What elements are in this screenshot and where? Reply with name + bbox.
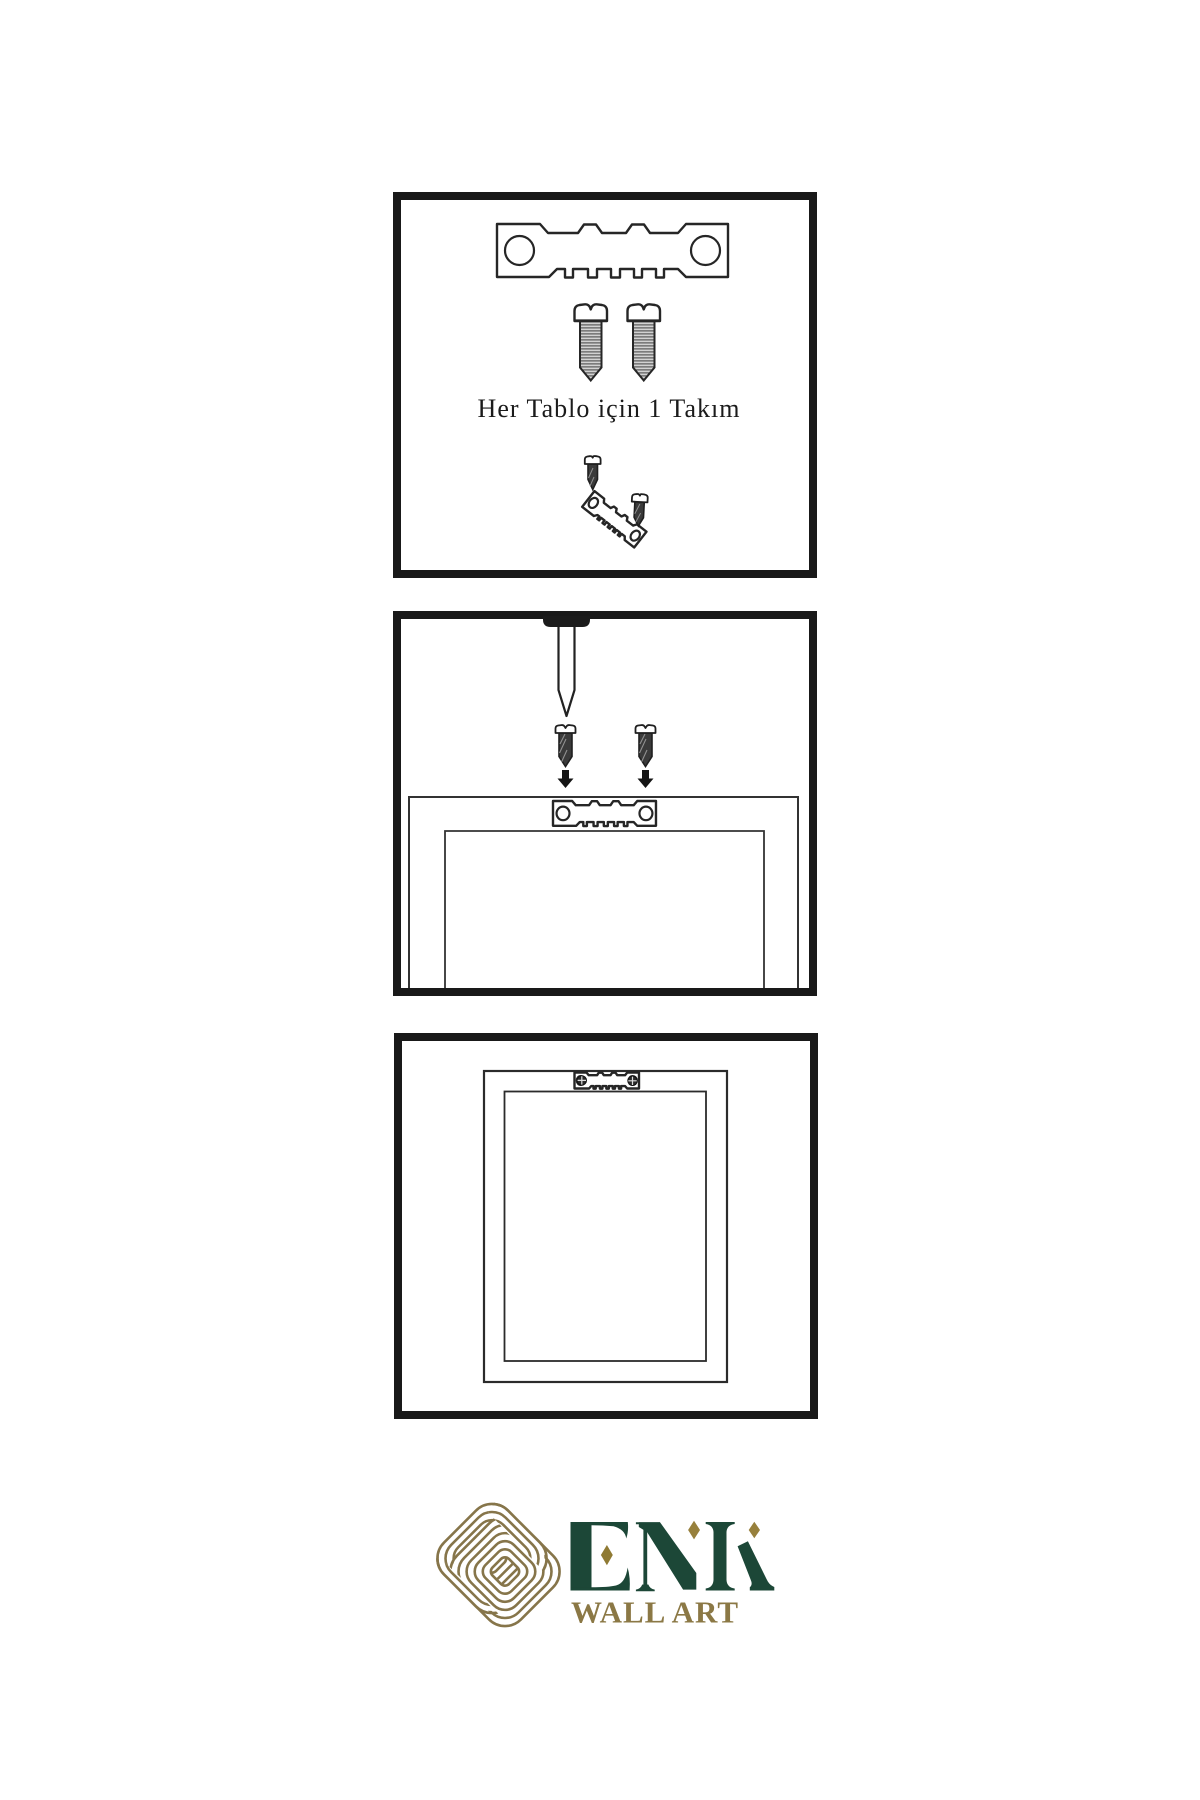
svg-text:WALL ART: WALL ART — [571, 1595, 739, 1630]
svg-text:Her Tablo için 1 Takım: Her Tablo için 1 Takım — [478, 394, 741, 423]
